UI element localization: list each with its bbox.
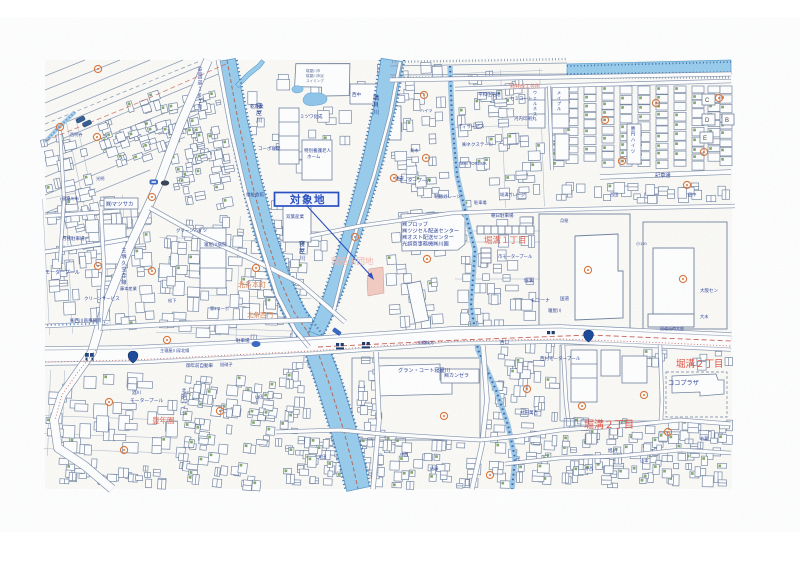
svg-text:モータープール: モータープール [45, 269, 80, 276]
svg-text:ス: ス [533, 112, 537, 117]
svg-text:MHI TOREMA: MHI TOREMA [460, 161, 487, 166]
svg-text:国: 国 [197, 74, 202, 80]
svg-text:寝: 寝 [299, 240, 305, 248]
svg-text:主寝屋川深北線: 主寝屋川深北線 [160, 347, 190, 354]
svg-text:グラン・コート寝屋川: グラン・コート寝屋川 [398, 366, 450, 374]
svg-text:イ: イ [557, 95, 561, 100]
svg-text:貝: 貝 [373, 102, 379, 109]
svg-text:ハ: ハ [631, 137, 636, 142]
svg-text:若葉: 若葉 [700, 435, 709, 442]
svg-text:1: 1 [199, 87, 202, 93]
svg-text:酒川: 酒川 [132, 389, 141, 396]
svg-text:メ: メ [557, 90, 561, 95]
svg-text:国道: 国道 [560, 295, 569, 302]
svg-text:寝屋川団地: 寝屋川団地 [331, 256, 374, 266]
svg-text:福祉会館: 福祉会館 [246, 191, 264, 198]
svg-text:ディサービス: ディサービス [458, 123, 485, 130]
svg-text:月極駐車場: 月極駐車場 [62, 235, 85, 242]
svg-text:寝: 寝 [256, 102, 262, 110]
svg-text:豊年園: 豊年園 [152, 415, 175, 425]
svg-text:国道当時大阪: 国道当時大阪 [660, 325, 684, 331]
svg-text:第2コーポ: 第2コーポ [210, 305, 229, 312]
svg-text:村田萬吉: 村田萬吉 [520, 409, 538, 416]
svg-text:藤本産業: 藤本産業 [120, 285, 138, 292]
svg-text:北条本町: 北条本町 [238, 280, 266, 289]
svg-text:月極: 月極 [560, 217, 568, 224]
svg-text:キコーナ: キコーナ [530, 298, 550, 304]
svg-text:㈱カンゼラ: ㈱カンゼラ [444, 372, 469, 379]
svg-text:小120: 小120 [636, 240, 647, 246]
svg-text:寝屋川病院: 寝屋川病院 [204, 241, 227, 248]
svg-text:ツ: ツ [182, 411, 187, 416]
svg-text:市モータープール: 市モータープール [498, 253, 533, 260]
svg-text:㈲共成工芸所: ㈲共成工芸所 [510, 83, 540, 90]
svg-text:屋: 屋 [256, 110, 262, 117]
svg-text:太田: 太田 [318, 453, 326, 460]
svg-text:川: 川 [299, 255, 305, 262]
svg-text:イ: イ [631, 143, 636, 148]
svg-text:㈱マツサカ: ㈱マツサカ [106, 200, 134, 208]
svg-text:道: 道 [197, 79, 202, 86]
svg-text:大末: 大末 [700, 313, 709, 320]
svg-text:平和住宅地: 平和住宅地 [478, 91, 501, 98]
svg-text:㈱西川商事務所: ㈱西川商事務所 [70, 317, 102, 324]
svg-text:モータープール: モータープール [398, 177, 431, 184]
svg-text:駐車場: 駐車場 [236, 337, 250, 344]
svg-text:イ: イ [182, 405, 187, 410]
svg-text:6: 6 [199, 93, 202, 99]
svg-text:ホーム: ホーム [307, 154, 321, 159]
svg-text:堺: 堺 [121, 252, 127, 260]
svg-text:至: 至 [197, 68, 202, 74]
svg-text:講: 講 [373, 94, 379, 102]
svg-text:主: 主 [121, 246, 126, 254]
svg-text:グリーンハイツ: グリーンハイツ [176, 227, 208, 234]
svg-text:堀溝２丁目: 堀溝２丁目 [584, 418, 634, 431]
svg-text:中西: 中西 [400, 451, 408, 458]
svg-text:堀溝: 堀溝 [524, 277, 533, 284]
svg-text:ミツワ化成: ミツワ化成 [300, 113, 323, 120]
svg-text:特別養護老人: 特別養護老人 [304, 147, 331, 154]
svg-text:光調商事務機㈱川園: 光調商事務機㈱川園 [402, 240, 449, 248]
svg-text:田中: 田中 [688, 191, 696, 198]
svg-text:線: 線 [121, 278, 126, 286]
svg-text:記草通: 記草通 [655, 171, 671, 179]
svg-text:寝屋川: 寝屋川 [548, 307, 562, 314]
svg-text:ココプラザ: ココプラザ [668, 380, 699, 387]
svg-text:クリーンサービス: クリーンサービス [84, 295, 120, 302]
svg-text:山田: 山田 [255, 393, 263, 400]
svg-text:ツ: ツ [631, 149, 636, 154]
svg-text:㈱ネクステージ: ㈱ネクステージ [462, 141, 494, 148]
svg-text:佐藤: 佐藤 [430, 465, 439, 472]
svg-text:松下: 松下 [168, 297, 176, 304]
svg-text:北条西門: 北条西門 [247, 310, 273, 319]
svg-text:宝: 宝 [121, 265, 126, 273]
svg-text:旭硝子: 旭硝子 [220, 361, 233, 368]
svg-text:御年前自動車: 御年前自動車 [186, 362, 213, 369]
svg-text:堀溝１丁目: 堀溝１丁目 [484, 235, 527, 245]
svg-text:駐車場: 駐車場 [474, 199, 487, 206]
svg-text:大阪セン: 大阪セン [700, 287, 718, 294]
svg-text:堀溝ガレージ: 堀溝ガレージ [500, 191, 525, 198]
svg-text:3: 3 [199, 99, 202, 105]
svg-text:寺: 寺 [121, 273, 126, 280]
svg-text:ハイツ: ハイツ [420, 108, 432, 113]
svg-text:号: 号 [197, 105, 202, 111]
svg-text:西中: 西中 [352, 91, 361, 98]
svg-text:㈱ツジセル配送センター: ㈱ツジセル配送センター [402, 227, 459, 235]
svg-text:寝屋川市: 寝屋川市 [62, 195, 79, 202]
svg-text:西村モータープール: 西村モータープール [540, 355, 581, 362]
svg-text:対象地: 対象地 [289, 193, 326, 206]
svg-text:セミコート: セミコート [510, 96, 533, 101]
svg-text:ウ: ウ [533, 89, 537, 95]
svg-text:堀溝２丁目: 堀溝２丁目 [676, 358, 724, 370]
svg-text:朝日駐車場: 朝日駐車場 [491, 212, 514, 219]
svg-text:双葉産業: 双葉産業 [286, 213, 304, 220]
svg-text:川: 川 [256, 117, 262, 124]
svg-text:旭川: 旭川 [608, 447, 617, 454]
svg-text:鞆勝ガレージ: 鞆勝ガレージ [434, 193, 461, 200]
svg-text:㈱プロッブ: ㈱プロッブ [402, 220, 428, 228]
svg-text:ル: ル [533, 101, 537, 106]
svg-text:川: 川 [373, 109, 379, 116]
svg-text:㈱オスト配送センター: ㈱オスト配送センター [402, 233, 454, 241]
svg-text:コーポ寝屋: コーポ寝屋 [258, 145, 281, 152]
svg-text:モータープール: モータープール [130, 397, 163, 404]
svg-text:久: 久 [121, 259, 127, 267]
svg-text:府道枚方: 府道枚方 [418, 339, 434, 345]
svg-text:屋: 屋 [299, 248, 305, 255]
svg-text:青木: 青木 [410, 147, 419, 154]
svg-text:ハ: ハ [182, 399, 187, 404]
svg-text:光明: 光明 [96, 175, 104, 182]
svg-text:山本: 山本 [640, 457, 649, 464]
svg-text:ル: ル [557, 106, 561, 111]
